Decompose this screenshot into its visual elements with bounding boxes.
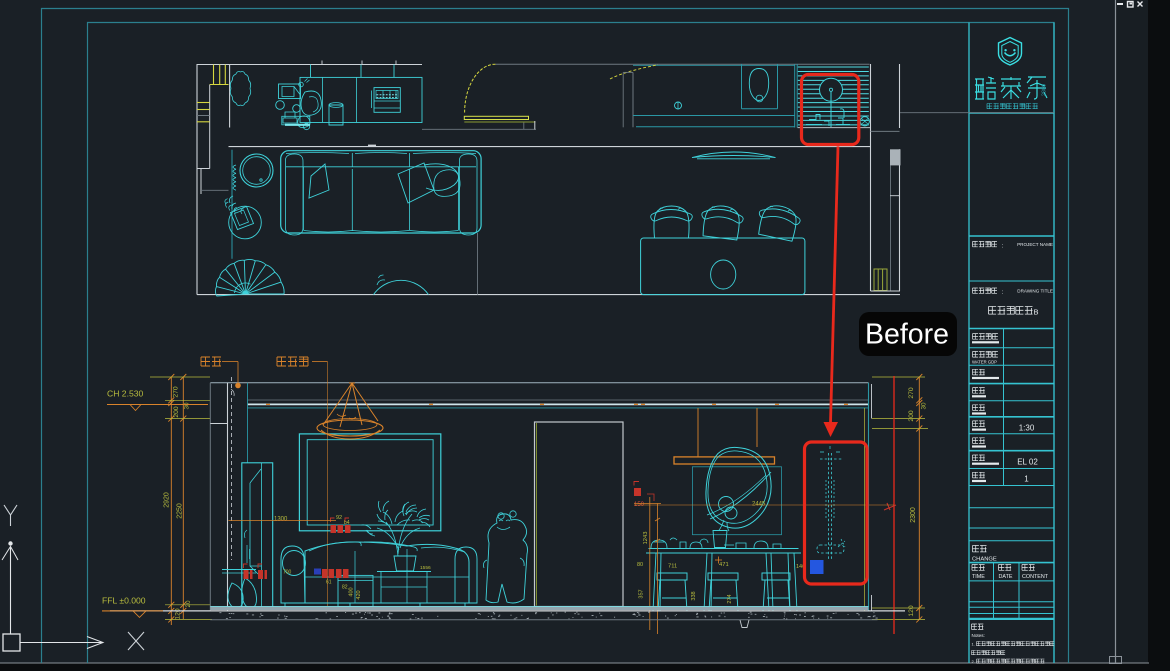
svg-text:30: 30 — [921, 402, 928, 410]
svg-text:Notes:: Notes: — [972, 633, 985, 638]
svg-text:82: 82 — [342, 585, 348, 591]
svg-text:471: 471 — [719, 562, 729, 568]
svg-text:120: 120 — [908, 605, 915, 617]
svg-text:274: 274 — [727, 594, 733, 603]
svg-text:400: 400 — [349, 587, 355, 596]
svg-text:30: 30 — [184, 402, 191, 410]
svg-text:WATER GDP: WATER GDP — [972, 360, 997, 365]
svg-text:200: 200 — [908, 410, 915, 422]
svg-text:1243: 1243 — [643, 532, 649, 545]
svg-text:1: 1 — [1024, 475, 1029, 484]
svg-text:711: 711 — [668, 564, 677, 570]
svg-text:61: 61 — [326, 580, 332, 586]
svg-text:420: 420 — [356, 590, 362, 599]
svg-text:FFL ±0.000: FFL ±0.000 — [102, 596, 146, 606]
svg-text:CONTENT: CONTENT — [1022, 574, 1049, 580]
svg-text:Before: Before — [865, 319, 949, 351]
svg-text:B: B — [1034, 308, 1039, 317]
svg-text:92: 92 — [336, 515, 342, 521]
svg-text:DRAWING TITLE: DRAWING TITLE — [1017, 289, 1053, 294]
svg-text:TIME: TIME — [972, 574, 985, 580]
svg-text:1.: 1. — [972, 642, 975, 647]
svg-text:120: 120 — [175, 608, 182, 620]
svg-text:2250: 2250 — [177, 503, 184, 519]
svg-text:357: 357 — [639, 589, 645, 598]
svg-text:1:30: 1:30 — [1019, 424, 1035, 433]
svg-text:b4: b4 — [344, 520, 350, 526]
svg-text:338: 338 — [691, 591, 697, 600]
svg-text:2300: 2300 — [910, 507, 917, 523]
svg-text:200: 200 — [173, 406, 180, 418]
svg-text:1300: 1300 — [274, 517, 288, 523]
svg-text:700: 700 — [283, 570, 292, 576]
svg-text:2800: 2800 — [1042, 84, 1048, 96]
svg-text:270: 270 — [173, 386, 180, 398]
svg-text:20: 20 — [185, 600, 192, 608]
svg-text:1556: 1556 — [420, 565, 431, 571]
svg-text:DATE: DATE — [999, 574, 1013, 580]
svg-text:2.: 2. — [972, 659, 975, 664]
svg-text:CH 2.530: CH 2.530 — [107, 389, 144, 399]
svg-text:PROJECT NAME: PROJECT NAME — [1017, 242, 1053, 247]
svg-text:270: 270 — [908, 387, 915, 399]
svg-text:2445: 2445 — [752, 502, 766, 508]
svg-text:CHANGE: CHANGE — [972, 557, 997, 563]
svg-text:2920: 2920 — [164, 492, 171, 508]
svg-text:80: 80 — [637, 562, 643, 568]
svg-text:EL 02: EL 02 — [1017, 458, 1038, 467]
